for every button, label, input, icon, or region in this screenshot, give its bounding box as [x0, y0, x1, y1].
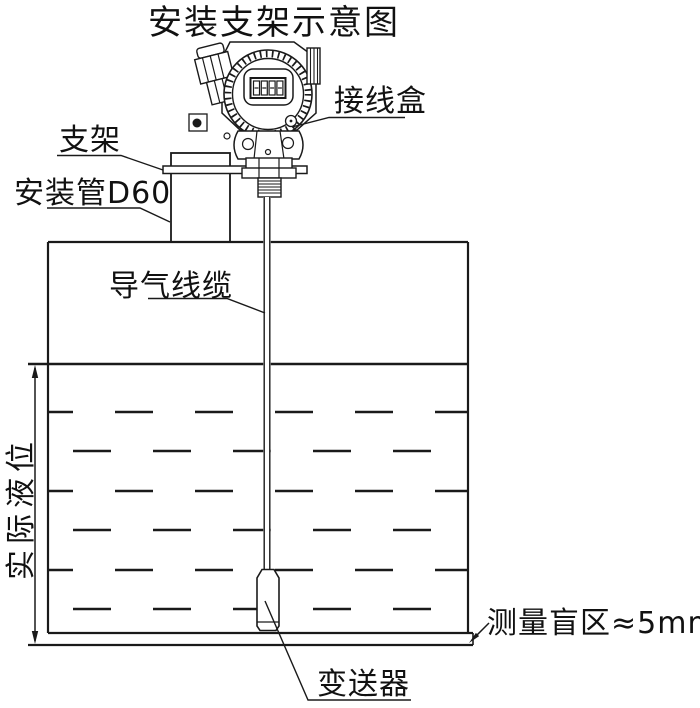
arrowhead-up-icon [32, 365, 38, 378]
page-title: 安装支架示意图 [148, 3, 400, 43]
tank-bottom [28, 633, 473, 645]
label-blind-zone: 测量盲区≈5mm [487, 606, 700, 641]
neck-coupling [234, 131, 303, 159]
transmitter-probe [257, 570, 279, 631]
hex-nut [242, 158, 296, 178]
air-cable [263, 197, 271, 571]
label-actual-level: 实际液位 [4, 436, 39, 580]
lcd-display [244, 69, 293, 105]
blanking-plug-icon [307, 48, 320, 84]
neck-bolt-left-icon [243, 139, 254, 150]
label-mounting-pipe: 安装管D60 [14, 176, 171, 211]
label-bracket: 支架 [59, 123, 121, 158]
small-screw-icon [224, 133, 230, 139]
transmitter-head [189, 42, 320, 159]
label-junction-box: 接线盒 [334, 84, 427, 119]
threaded-stub [258, 178, 281, 197]
neck-bolt-right-icon [283, 138, 294, 149]
cover-bolt-center [290, 120, 293, 123]
label-air-cable: 导气线缆 [109, 269, 233, 304]
arrowhead-down-icon [32, 631, 38, 644]
label-transmitter: 变送器 [317, 667, 410, 702]
installation-diagram: 安装支架示意图 接线盒 支架 安装管D60 导气线缆 实际液位 测量盲区≈5mm… [0, 0, 700, 708]
neck-center-dot [266, 150, 271, 155]
ground-screw-icon [193, 119, 202, 128]
diagram-page: 安装支架示意图 接线盒 支架 安装管D60 导气线缆 实际液位 测量盲区≈5mm… [0, 0, 700, 708]
